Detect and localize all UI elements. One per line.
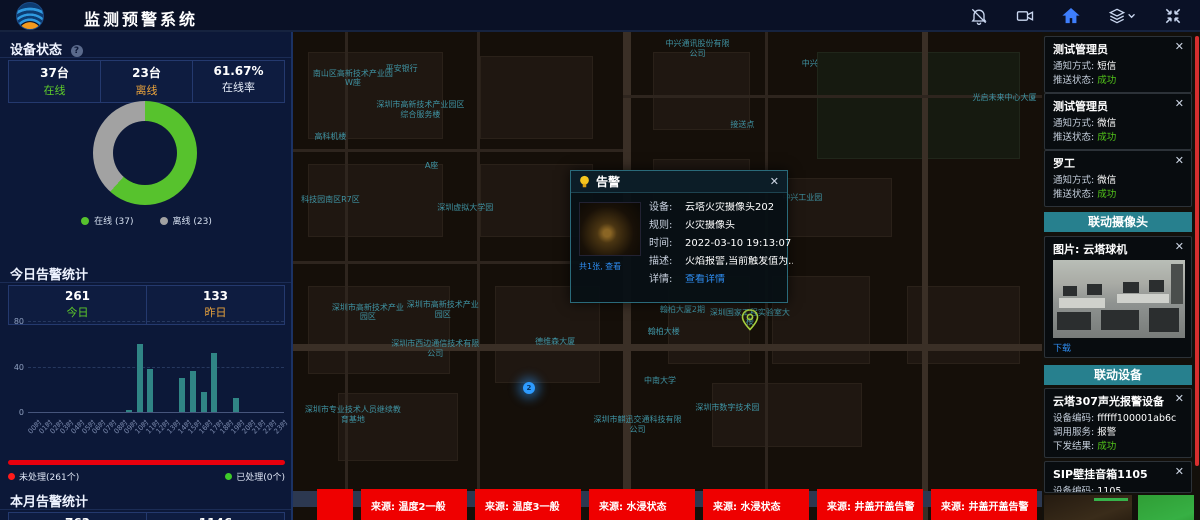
stat-online: 37台 在线 bbox=[9, 61, 100, 102]
alarm-photo-column: 共1张, 查看 bbox=[579, 202, 641, 292]
alarm-photo-link[interactable]: 共1张, 查看 bbox=[579, 261, 641, 272]
today-bar-chart: 04080 bbox=[28, 321, 284, 412]
unhandled-legend-item: 未处理(261个) bbox=[8, 470, 79, 483]
video-thumbnail[interactable] bbox=[1138, 495, 1194, 520]
map-canvas[interactable]: 2 告警 ✕ 共1张, 查看 设备: 云塔火灾摄像头202 bbox=[293, 32, 1042, 520]
photo-shape bbox=[1059, 298, 1105, 308]
map-label: 中兴 bbox=[790, 59, 830, 69]
legend-offline[interactable]: 离线 (23) bbox=[160, 214, 212, 227]
device-donut-chart bbox=[93, 101, 197, 205]
bar-16时 bbox=[201, 392, 207, 412]
notification-card: 测试管理员 ✕ 通知方式: 微信 推送状态: 成功 bbox=[1044, 93, 1192, 150]
video-thumbnail[interactable] bbox=[1044, 495, 1132, 520]
linked-device-header: 联动设备 bbox=[1044, 365, 1192, 385]
field-description: 描述: 火焰报警,当前触发值为... bbox=[649, 256, 793, 268]
donut-legend: 在线 (37) 离线 (23) bbox=[0, 214, 293, 227]
legend-online[interactable]: 在线 (37) bbox=[81, 214, 133, 227]
photo-shape bbox=[1117, 294, 1169, 303]
handled-legend-item: 已处理(0个) bbox=[225, 470, 285, 483]
map-label: 深圳市高新技术产业园区综合服务楼 bbox=[374, 100, 466, 119]
sip-speaker-card: SIP壁挂音箱1105 ✕ 设备编码: 1105 bbox=[1044, 461, 1192, 493]
photo-shape bbox=[1123, 282, 1139, 293]
field-device: 设备: 云塔火灾摄像头202 bbox=[649, 202, 793, 214]
app-title: 监测预警系统 bbox=[84, 6, 198, 30]
close-icon[interactable]: ✕ bbox=[1175, 466, 1184, 477]
map-label: 高科机楼 bbox=[300, 132, 360, 142]
close-icon[interactable]: ✕ bbox=[1175, 393, 1184, 404]
bell-off-icon[interactable] bbox=[968, 5, 990, 27]
map-block bbox=[712, 383, 862, 446]
map-label: 深圳市专业技术人员继续教育基地 bbox=[304, 405, 402, 424]
field-rule: 规则: 火灾摄像头 bbox=[649, 220, 793, 232]
map-label: 深圳市高新技术产业园区 bbox=[329, 303, 407, 322]
alert-source-tile[interactable]: 来源: 水浸状态 bbox=[703, 489, 809, 520]
linked-device-card: 云塔307声光报警设备 ✕ 设备编码: ffffff100001ab6c 调用服… bbox=[1044, 388, 1192, 458]
monitoring-dashboard: 监测预警系统 bbox=[0, 0, 1200, 520]
map-label: 德维森大厦 bbox=[520, 337, 590, 347]
map-road bbox=[922, 32, 928, 520]
linked-camera-header: 联动摄像头 bbox=[1044, 212, 1192, 232]
stat-yesterday: 133 昨日 bbox=[146, 286, 284, 324]
month-alarm-title: 本月告警统计 bbox=[10, 495, 88, 510]
today-alarm-stats: 261 今日 133 昨日 bbox=[8, 285, 285, 325]
bar-17时 bbox=[211, 353, 217, 412]
close-icon[interactable]: ✕ bbox=[1175, 241, 1184, 252]
alarm-popup-title: 告警 bbox=[596, 173, 764, 190]
map-label: 深圳虚拟大学园 bbox=[415, 203, 515, 213]
y-tick-label: 0 bbox=[8, 408, 24, 417]
progress-legend: 未处理(261个) 已处理(0个) bbox=[8, 470, 285, 483]
gridline bbox=[28, 321, 284, 322]
map-label: 中兴通讯股份有限公司 bbox=[664, 39, 730, 58]
device-status-stats: 37台 在线 23台 离线 61.67% 在线率 bbox=[8, 60, 285, 103]
month-alarm-stats: 763 1146 bbox=[8, 512, 285, 520]
device-cluster-marker[interactable]: 2 bbox=[523, 382, 535, 394]
alarm-popup-body: 共1张, 查看 设备: 云塔火灾摄像头202 规则: 火灾摄像头 时间: 202… bbox=[571, 193, 787, 292]
map-road bbox=[477, 32, 480, 520]
top-bar: 监测预警系统 bbox=[0, 0, 1200, 32]
gridline bbox=[28, 367, 284, 368]
stat-today: 261 今日 bbox=[9, 286, 146, 324]
map-label: 翰柏大楼 bbox=[634, 327, 694, 337]
app-logo-icon bbox=[16, 2, 44, 30]
close-icon[interactable]: ✕ bbox=[770, 176, 779, 187]
bar-14时 bbox=[179, 378, 185, 412]
bar-19时 bbox=[233, 398, 239, 412]
photo-shape bbox=[1171, 264, 1183, 304]
legend-dot-online bbox=[81, 217, 89, 225]
photo-shape bbox=[1063, 286, 1077, 296]
map-label: 深圳市高新技术产业园区 bbox=[404, 300, 482, 319]
alarm-snapshot-image[interactable] bbox=[579, 202, 641, 256]
stat-last-month: 1146 bbox=[146, 513, 284, 520]
y-tick-label: 40 bbox=[8, 363, 24, 372]
close-icon[interactable]: ✕ bbox=[1175, 41, 1184, 52]
close-icon[interactable]: ✕ bbox=[1175, 98, 1184, 109]
unhandled-progress-bar bbox=[8, 460, 285, 465]
page-scrollbar[interactable] bbox=[1195, 36, 1199, 466]
map-block bbox=[787, 178, 892, 237]
map-label: 深圳市西边通信技术有限公司 bbox=[389, 339, 481, 358]
photo-shape bbox=[1057, 312, 1091, 330]
map-label: 科技园南区R7区 bbox=[293, 195, 376, 205]
notification-card: 罗工 ✕ 通知方式: 微信 推送状态: 成功 bbox=[1044, 150, 1192, 207]
fullscreen-exit-icon[interactable] bbox=[1162, 5, 1184, 27]
stat-online-rate: 61.67% 在线率 bbox=[192, 61, 284, 102]
notification-card: 测试管理员 ✕ 通知方式: 短信 推送状态: 成功 bbox=[1044, 36, 1192, 93]
alert-source-tile[interactable]: 来源: 水浸状态 bbox=[589, 489, 695, 520]
device-status-header: 设备状态 ? bbox=[0, 36, 291, 58]
alarm-popup: 告警 ✕ 共1张, 查看 设备: 云塔火灾摄像头202 规则: 火灾摄像头 bbox=[570, 170, 788, 303]
today-alarm-header: 今日告警统计 bbox=[0, 261, 291, 283]
map-label: 光启未来中心大厦 bbox=[950, 93, 1042, 103]
bar-11时 bbox=[147, 369, 153, 412]
video-camera-icon[interactable] bbox=[1014, 5, 1036, 27]
download-link[interactable]: 下载 bbox=[1053, 341, 1183, 354]
today-bar-xlabels: 00时01时02时03时04时05时06时07时08时09时10时11时12时1… bbox=[28, 415, 284, 449]
help-icon[interactable]: ? bbox=[71, 45, 83, 57]
map-label: 中南大学 bbox=[630, 376, 690, 386]
bar-10时 bbox=[137, 344, 143, 412]
home-icon[interactable] bbox=[1060, 5, 1082, 27]
legend-dot-offline bbox=[160, 217, 168, 225]
bar-09时 bbox=[126, 410, 132, 412]
photo-shape bbox=[1149, 280, 1164, 292]
green-dot-icon bbox=[225, 473, 232, 480]
map-road bbox=[293, 149, 623, 152]
map-label: 翰柏大厦2期 bbox=[645, 305, 719, 315]
alarm-popup-header: 告警 ✕ bbox=[571, 171, 787, 193]
alert-source-tile[interactable]: 来源: 温度3一般 bbox=[475, 489, 581, 520]
field-detail: 详情: 查看详情 bbox=[649, 274, 793, 286]
top-icon-group bbox=[968, 3, 1184, 29]
bottom-alert-bar: 来源: 温度2一般来源: 温度3一般来源: 水浸状态来源: 水浸状态来源: 井盖… bbox=[317, 489, 1037, 520]
map-block bbox=[308, 286, 450, 374]
red-dot-icon bbox=[8, 473, 15, 480]
location-pin-icon[interactable] bbox=[741, 309, 759, 335]
map-block bbox=[653, 52, 750, 130]
today-alarm-title: 今日告警统计 bbox=[10, 268, 88, 283]
close-icon[interactable]: ✕ bbox=[1175, 155, 1184, 166]
map-label: A座 bbox=[412, 161, 452, 171]
alert-source-tile[interactable]: 来源: 温度2一般 bbox=[361, 489, 467, 520]
map-road bbox=[345, 32, 348, 520]
field-time: 时间: 2022-03-10 19:13:07 bbox=[649, 238, 793, 250]
map-block bbox=[338, 393, 458, 461]
stat-month: 763 bbox=[9, 513, 146, 520]
month-alarm-header: 本月告警统计 bbox=[0, 488, 291, 510]
map-label: 接送点 bbox=[717, 120, 767, 130]
alert-source-tile[interactable]: 来源: 井盖开盖告警 bbox=[817, 489, 923, 520]
stat-offline: 23台 离线 bbox=[100, 61, 192, 102]
linked-camera-card: 图片: 云塔球机 ✕ 下载 bbox=[1044, 236, 1192, 358]
bar-15时 bbox=[190, 371, 196, 412]
alarm-bulb-icon bbox=[579, 175, 590, 189]
photo-shape bbox=[1149, 308, 1179, 332]
right-panel: 测试管理员 ✕ 通知方式: 短信 推送状态: 成功 测试管理员 ✕ 通知方式: … bbox=[1042, 32, 1200, 520]
view-detail-link[interactable]: 查看详情 bbox=[685, 274, 725, 286]
photo-shape bbox=[1101, 310, 1139, 330]
camera-snapshot-image[interactable] bbox=[1053, 260, 1185, 338]
map-label: 深圳市数字技术园 bbox=[672, 403, 782, 413]
map-block bbox=[480, 56, 592, 139]
y-tick-label: 80 bbox=[8, 317, 24, 326]
map-label: 南山区高新技术产业园W座 bbox=[312, 69, 394, 88]
alert-source-tile-partial[interactable] bbox=[317, 489, 353, 520]
alert-source-tile[interactable]: 来源: 井盖开盖告警 bbox=[931, 489, 1037, 520]
gridline bbox=[28, 412, 284, 413]
left-panel: 设备状态 ? 37台 在线 23台 离线 61.67% 在线率 在线 (37) bbox=[0, 32, 293, 520]
layers-dropdown-icon[interactable] bbox=[1106, 5, 1138, 27]
alarm-fields: 设备: 云塔火灾摄像头202 规则: 火灾摄像头 时间: 2022-03-10 … bbox=[649, 202, 793, 292]
photo-shape bbox=[1087, 284, 1102, 295]
map-block bbox=[817, 52, 1019, 159]
device-status-title: 设备状态 bbox=[10, 43, 62, 58]
map-label: 深圳市麒迅交通科技有限公司 bbox=[592, 415, 684, 434]
